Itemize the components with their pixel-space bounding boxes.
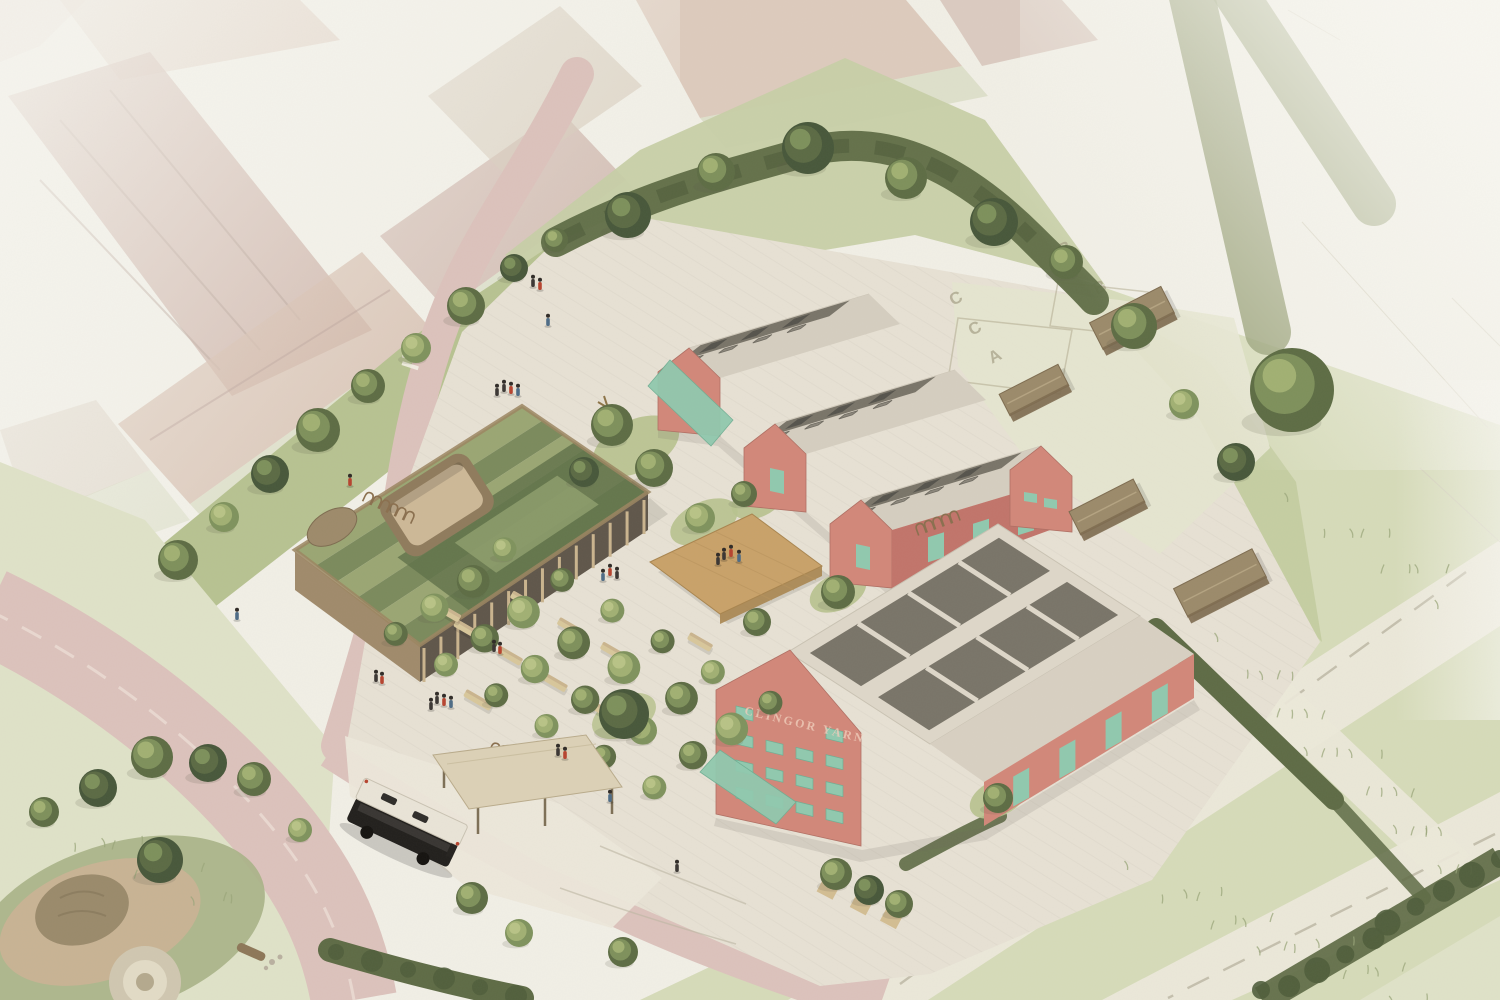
shrub — [472, 979, 488, 995]
stone — [278, 955, 283, 960]
shrub — [433, 967, 455, 989]
site-plan-rendering: BCCAB — [0, 0, 1500, 1000]
mint-door — [928, 532, 944, 562]
mint-door — [770, 468, 784, 494]
shrub — [1459, 862, 1485, 888]
shrub — [1278, 975, 1300, 997]
shrub — [361, 950, 383, 972]
spiral-center — [136, 973, 154, 991]
stone — [264, 966, 268, 970]
shrub — [1375, 910, 1401, 936]
shrub — [1433, 880, 1455, 902]
stone — [269, 959, 275, 965]
aerial-site-plan: BCCAB — [0, 0, 1500, 1000]
shrub — [400, 962, 416, 978]
shrub — [1304, 957, 1330, 983]
shrub — [1336, 945, 1354, 963]
shrub — [1407, 898, 1425, 916]
shrub — [328, 944, 344, 960]
right-edge-wash — [1395, 380, 1500, 720]
mint-door — [856, 544, 870, 570]
shrub — [1252, 981, 1270, 999]
